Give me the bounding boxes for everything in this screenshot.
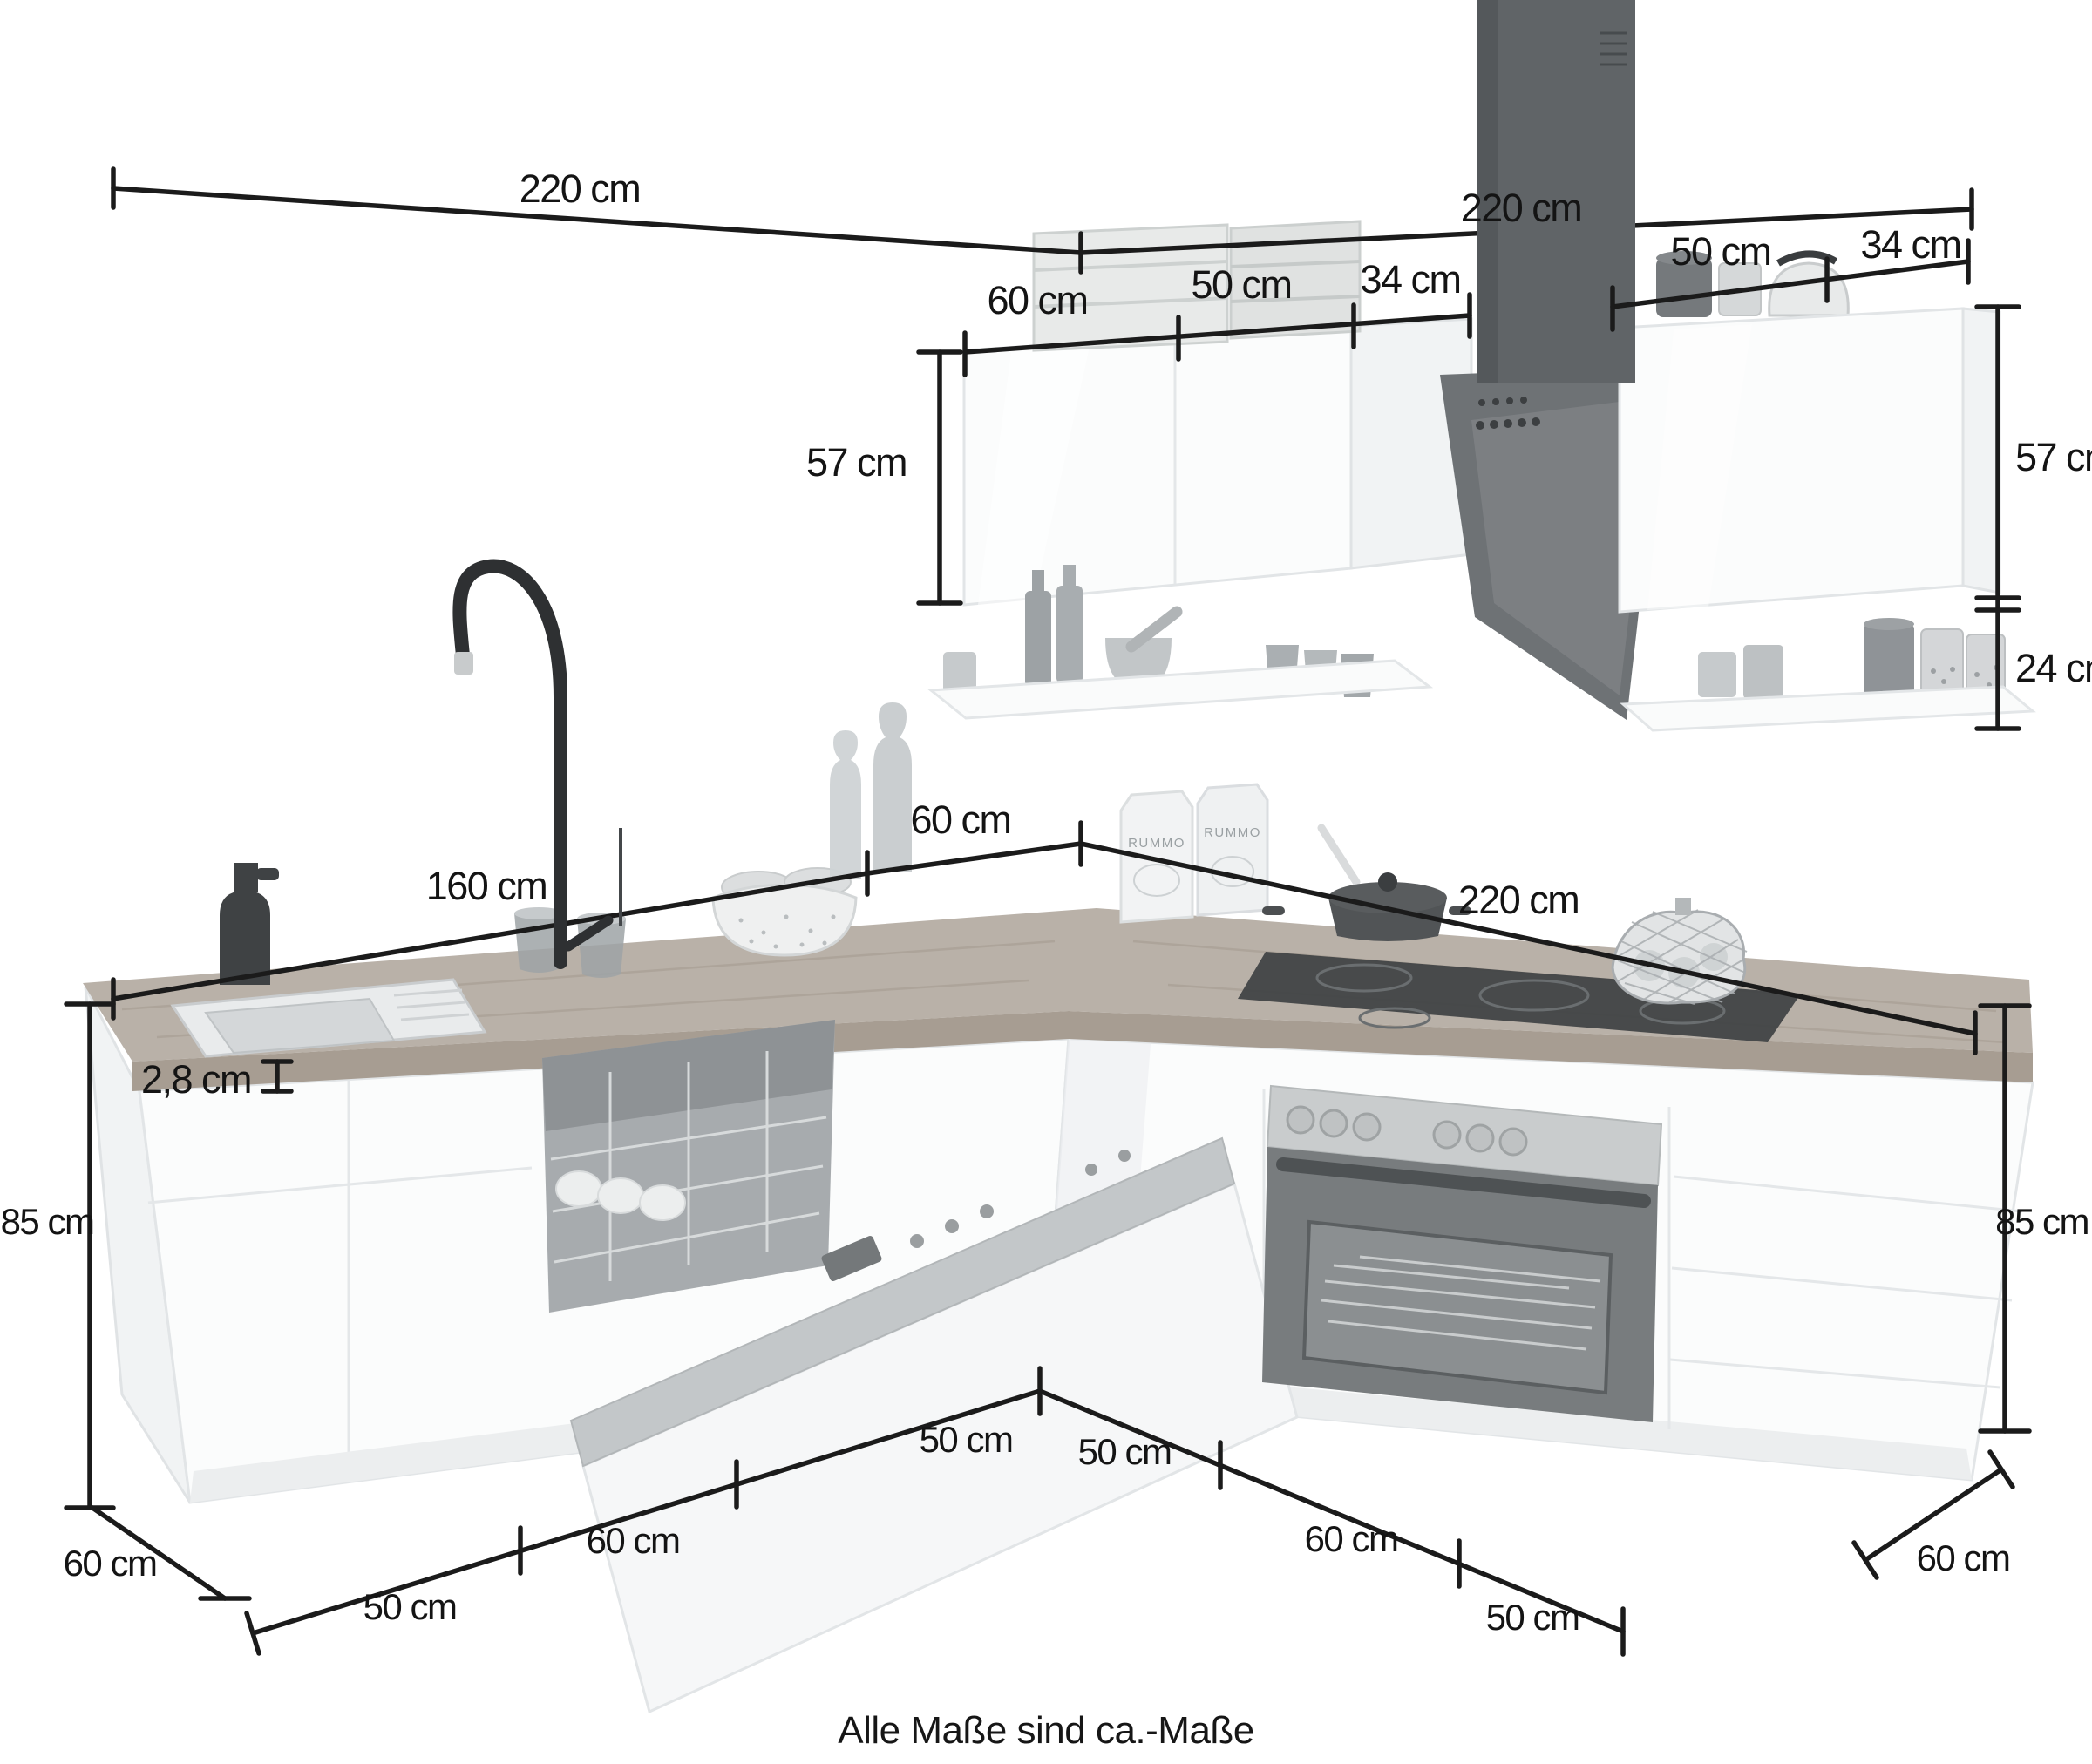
canister-lid: [1864, 618, 1914, 630]
dim-depth-left: 60 cm: [64, 1508, 249, 1598]
kitchen-scene: RUMMO RUMMO: [83, 221, 2033, 1712]
caption: Alle Maße sind ca.-Maße: [838, 1709, 1254, 1752]
dim-label-counter-220: 220 cm: [1458, 878, 1579, 922]
bag-knot: [1675, 898, 1691, 915]
pasta-brand-label: RUMMO: [1128, 836, 1185, 851]
dishwasher-button: [1118, 1150, 1131, 1162]
pasta-bag: [1198, 784, 1267, 915]
dim-label-wall-left-60: 60 cm: [987, 278, 1087, 322]
dim-label-base-right-50a: 50 cm: [1078, 1431, 1172, 1472]
dim-label-counter-60: 60 cm: [910, 797, 1010, 842]
dim-label-wall-left-34: 34 cm: [1360, 257, 1460, 302]
dim-label-shelf-right-height: 24 cm: [2015, 646, 2092, 690]
cup: [640, 1185, 685, 1220]
cup: [556, 1171, 601, 1206]
dim-label-height-right: 85 cm: [1995, 1201, 2089, 1242]
dim-label-base-right-50b: 50 cm: [1486, 1597, 1579, 1638]
dim-label-height-left: 85 cm: [1, 1201, 94, 1242]
dim-wall-left-height: 57 cm: [806, 352, 961, 603]
bottle-neck: [1063, 565, 1076, 589]
pasta-brand-label: RUMMO: [1204, 825, 1261, 840]
oil-bottle: [1056, 586, 1083, 683]
dim-label-wall-left-50: 50 cm: [1191, 262, 1291, 307]
cup: [1698, 652, 1736, 697]
bottle-neck: [1032, 570, 1044, 594]
oil-bottle: [1025, 591, 1051, 687]
cup: [598, 1178, 643, 1213]
dim-label-base-left-50b: 50 cm: [920, 1419, 1013, 1460]
cup: [943, 652, 976, 692]
dim-label-wall-left-height: 57 cm: [806, 440, 907, 485]
canister: [1864, 624, 1914, 697]
kettle: [1769, 263, 1849, 315]
dim-label-wall-right-34: 34 cm: [1860, 222, 1960, 267]
pot-knob: [1378, 872, 1397, 892]
dim-label-wall-right-height: 57 cm: [2015, 435, 2092, 479]
dim-label-depth-left: 60 cm: [64, 1543, 157, 1584]
dim-label-base-left-60: 60 cm: [587, 1520, 680, 1561]
dim-label-wall-right-50: 50 cm: [1670, 229, 1770, 274]
shelf-board: [1623, 687, 2033, 730]
dim-label-counter-160: 160 cm: [426, 864, 547, 908]
product-image: RUMMO RUMMO: [0, 0, 2092, 1764]
dim-label-depth-right: 60 cm: [1917, 1537, 2010, 1578]
dim-label-top-right-width: 220 cm: [1461, 186, 1582, 230]
soap-dispenser: [220, 863, 279, 985]
dishwasher-button: [1085, 1164, 1097, 1176]
dim-label-base-left-50a: 50 cm: [363, 1586, 457, 1627]
dim-label-base-right-60: 60 cm: [1305, 1518, 1398, 1559]
mesh-bag: [1613, 898, 1747, 1004]
pot-handle: [1262, 906, 1285, 915]
wall-cabinets-left: [964, 319, 1471, 605]
pepper-mill: [873, 702, 912, 872]
soap-spout: [256, 868, 279, 880]
soap-bottle: [220, 891, 270, 985]
wall-cabinet-right: [1620, 251, 2000, 612]
wall-cabinet-right-side: [1963, 309, 2000, 593]
wall-shelf-right: [1623, 618, 2033, 730]
pepper-mill: [830, 730, 861, 879]
kitchen-dimension-diagram: RUMMO RUMMO: [0, 0, 2092, 1764]
dim-label-worktop-thickness: 2,8 cm: [141, 1057, 251, 1102]
dishwasher-button: [945, 1219, 959, 1233]
pepper-mills: [830, 702, 912, 879]
spoon: [1321, 828, 1356, 882]
dishwasher-button: [910, 1234, 924, 1248]
dim-label-top-left-width: 220 cm: [520, 166, 641, 211]
pasta-bags: RUMMO RUMMO: [1121, 784, 1267, 922]
onion: [1700, 943, 1728, 971]
shelf-board: [931, 661, 1430, 718]
soap-pump: [234, 863, 258, 892]
jar: [1743, 645, 1783, 699]
faucet-aerator: [454, 652, 473, 675]
dishwasher-button: [980, 1204, 994, 1218]
dim-top-right-width: 220 cm: [1461, 186, 1582, 230]
dim-top-left-width: 220 cm: [113, 166, 1081, 272]
oven: [1262, 1086, 1661, 1422]
